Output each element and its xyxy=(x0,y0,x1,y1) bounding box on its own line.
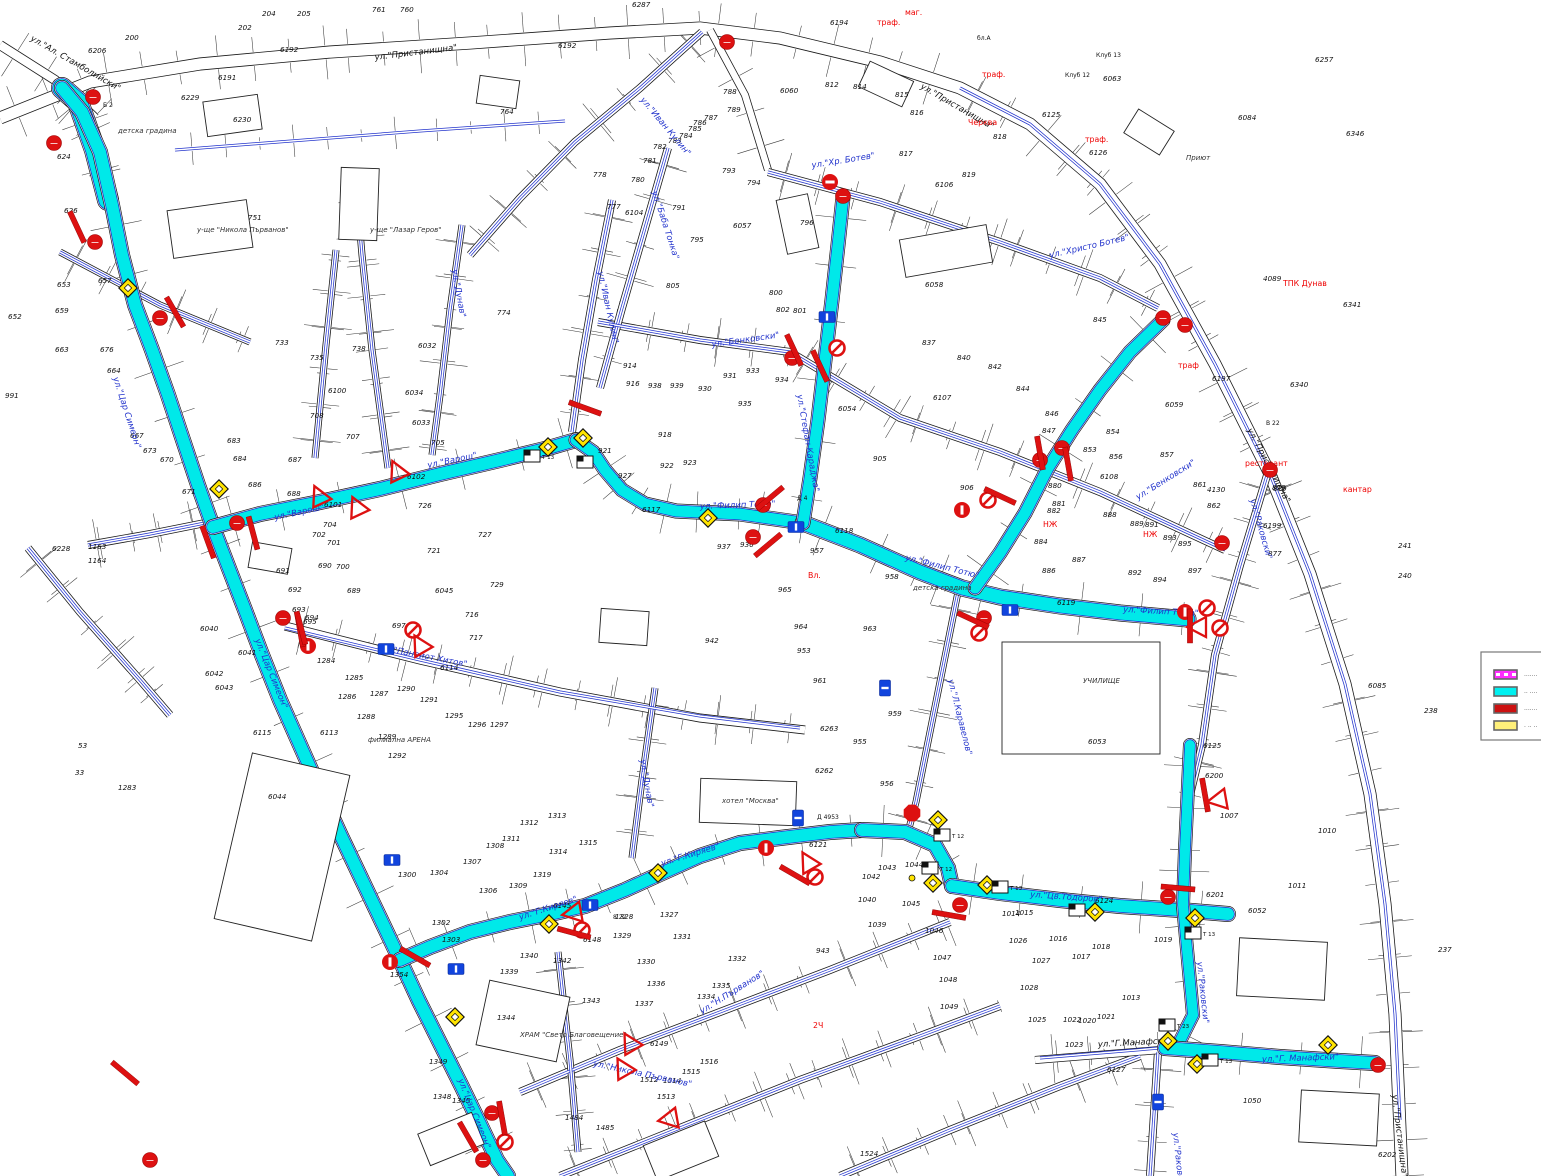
parcel-number: 687 xyxy=(288,455,302,464)
parcel-number: 6119 xyxy=(1057,598,1076,607)
parcel-number: 1484 xyxy=(565,1113,584,1122)
parcel-number: 241 xyxy=(1398,541,1412,550)
parcel-number: 1303 xyxy=(442,935,461,944)
parcel-number: 6100 xyxy=(328,386,347,395)
poi-label-red: Черква xyxy=(968,118,997,127)
slash-marker[interactable] xyxy=(830,341,845,356)
parcel-number: 727 xyxy=(478,530,492,539)
parcel-number: 240 xyxy=(1398,571,1412,580)
parcel-number: 791 xyxy=(672,203,686,212)
parcel-number: 937 xyxy=(717,542,731,551)
shaft-marker[interactable] xyxy=(1069,904,1085,916)
parcel-number: 695 xyxy=(303,617,317,626)
parcel-number: 1297 xyxy=(490,720,509,729)
dot-marker[interactable] xyxy=(86,90,101,105)
parcel-number: 1017 xyxy=(1072,952,1091,961)
parcel-number: 886 xyxy=(1042,566,1056,575)
parcel-number: 6044 xyxy=(268,792,287,801)
poi-label: у-ще "Лазар Геров" xyxy=(369,226,442,234)
parcel-number: 1015 xyxy=(1015,908,1034,917)
parcel-number: 6229 xyxy=(181,93,200,102)
parcel-number: 1296 xyxy=(468,720,487,729)
parcel-number: 686 xyxy=(248,480,262,489)
parcel-number: 1513 xyxy=(657,1092,676,1101)
parcel-number: 204 xyxy=(262,9,276,18)
parcel-number: 1018 xyxy=(1092,942,1111,951)
parcel-number: 751 xyxy=(248,213,262,222)
parcel-number: 894 xyxy=(1153,575,1167,584)
poi-label: УЧИЛИЩЕ xyxy=(1083,677,1120,685)
parcel-number: 1342 xyxy=(553,956,572,965)
parcel-number: 892 xyxy=(1128,568,1142,577)
parcel-number: 1288 xyxy=(357,712,376,721)
parcel-number: 906 xyxy=(960,483,974,492)
legend-label: ·· ···· xyxy=(1524,690,1537,697)
parcel-number: 1049 xyxy=(940,1002,959,1011)
poi-label: детска градина xyxy=(117,127,176,135)
svg-text:Т 12: Т 12 xyxy=(951,834,964,840)
parcel-number: 652 xyxy=(8,312,22,321)
parcel-number: 760 xyxy=(400,5,414,14)
parcel-number: 1311 xyxy=(502,834,520,843)
parcel-number: 846 xyxy=(1045,409,1059,418)
parcel-number: 800 xyxy=(769,288,783,297)
dot-marker[interactable] xyxy=(143,1153,158,1168)
parcel-number: 963 xyxy=(863,624,877,633)
parcel-number: 1300 xyxy=(398,870,417,879)
annotation-label: В 22 xyxy=(1266,420,1280,427)
parcel-number: 237 xyxy=(1438,945,1452,954)
parcel-number: 854 xyxy=(1106,427,1120,436)
parcel-number: 708 xyxy=(310,411,324,420)
parcel-number: 842 xyxy=(988,362,1002,371)
parcel-number: 1302 xyxy=(432,918,451,927)
parcel-number: 844 xyxy=(1016,384,1030,393)
parcel-number: 6341 xyxy=(1343,300,1361,309)
parcel-number: 1332 xyxy=(728,954,747,963)
parcel-number: 780 xyxy=(631,175,645,184)
slash-marker[interactable] xyxy=(1200,601,1215,616)
bsign-marker[interactable] xyxy=(582,900,598,911)
parcel-number: 6117 xyxy=(642,505,661,514)
parcel-number: 905 xyxy=(873,454,887,463)
svg-text:Т 12: Т 12 xyxy=(939,867,952,873)
parcel-number: 726 xyxy=(418,501,432,510)
parcel-number: 6192 xyxy=(558,41,577,50)
parcel-number: 6054 xyxy=(838,404,857,413)
parcel-number: 1025 xyxy=(1028,1015,1047,1024)
bsign-marker[interactable] xyxy=(788,522,804,533)
dot-marker[interactable] xyxy=(1263,463,1278,478)
parcel-number: 1319 xyxy=(533,870,552,879)
parcel-number: 6206 xyxy=(88,46,107,55)
parcel-number: 6104 xyxy=(625,208,644,217)
ydot-marker[interactable] xyxy=(909,875,915,881)
dot-marker[interactable] xyxy=(476,1153,491,1168)
parcel-number: 955 xyxy=(853,737,867,746)
parcel-number: 1312 xyxy=(520,818,539,827)
parcel-number: 788 xyxy=(723,87,737,96)
parcel-number: 689 xyxy=(347,586,361,595)
bsign-marker[interactable] xyxy=(880,680,891,696)
parcel-number: 1485 xyxy=(596,1123,615,1132)
city-map-svg[interactable]: 2002022042056206619261926191622962307516… xyxy=(0,0,1541,1176)
parcel-number: 690 xyxy=(318,561,332,570)
parcel-number: 1330 xyxy=(637,957,656,966)
parcel-number: 1306 xyxy=(479,886,498,895)
dot-marker[interactable] xyxy=(1161,890,1176,905)
parcel-number: 6060 xyxy=(780,86,799,95)
parcel-number: 1287 xyxy=(370,689,389,698)
parcel-number: 6125 xyxy=(1203,741,1222,750)
legend-label: · ·· ·· xyxy=(1524,724,1537,731)
parcel-number: 933 xyxy=(746,366,760,375)
parcel-number: 818 xyxy=(993,132,1007,141)
dot-marker[interactable] xyxy=(720,35,735,50)
parcel-number: 778 xyxy=(593,170,607,179)
parcel-number: 671 xyxy=(182,487,196,496)
parcel-number: 1515 xyxy=(682,1067,701,1076)
parcel-number: 815 xyxy=(895,90,909,99)
vbar-marker[interactable] xyxy=(382,954,398,970)
parcel-number: 676 xyxy=(100,345,114,354)
parcel-number: 721 xyxy=(427,546,441,555)
parcel-number: 1047 xyxy=(933,953,952,962)
poi-label-red: траф. xyxy=(982,70,1005,79)
parcel-number: 6191 xyxy=(218,73,236,82)
parcel-number: 1286 xyxy=(338,692,357,701)
vbar-marker[interactable] xyxy=(954,502,970,518)
parcel-number: 923 xyxy=(683,458,697,467)
parcel-number: 688 xyxy=(287,489,301,498)
parcel-number: 1283 xyxy=(118,783,137,792)
parcel-number: 1285 xyxy=(345,673,364,682)
parcel-number: 6032 xyxy=(418,341,437,350)
parcel-number: 965 xyxy=(778,585,792,594)
parcel-number: 1043 xyxy=(878,863,897,872)
dot-marker[interactable] xyxy=(276,611,291,626)
dot-marker[interactable] xyxy=(1178,318,1193,333)
bsign-marker[interactable] xyxy=(378,644,394,655)
parcel-number: 916 xyxy=(626,379,640,388)
parcel-number: 814 xyxy=(853,82,867,91)
parcel-number: 861 xyxy=(1193,480,1207,489)
parcel-number: 701 xyxy=(327,538,341,547)
parcel-number: 1046 xyxy=(925,926,944,935)
parcel-number: 1021 xyxy=(1097,1012,1115,1021)
parcel-number: 6058 xyxy=(925,280,944,289)
parcel-number: 856 xyxy=(1109,452,1123,461)
parcel-number: 1028 xyxy=(1020,983,1039,992)
parcel-number: 6053 xyxy=(1088,737,1107,746)
dot-marker[interactable] xyxy=(836,189,851,204)
parcel-number: 700 xyxy=(336,562,350,571)
poi-label-red: 2Ч xyxy=(813,1021,823,1030)
parcel-number: 202 xyxy=(238,23,252,32)
stopbar-marker[interactable] xyxy=(822,174,838,190)
parcel-number: 1019 xyxy=(1154,935,1173,944)
parcel-number: 6045 xyxy=(435,586,454,595)
shaft-marker[interactable] xyxy=(577,456,593,468)
parcel-number: 939 xyxy=(670,381,684,390)
parcel-number: 1331 xyxy=(673,932,691,941)
parcel-number: 938 xyxy=(648,381,662,390)
poi-label-red: траф. xyxy=(877,18,900,27)
parcel-number: 794 xyxy=(747,178,761,187)
parcel-number: 956 xyxy=(880,779,894,788)
parcel-number: 897 xyxy=(1188,566,1202,575)
poi-label-red: Вл. xyxy=(808,571,821,580)
bsign-marker[interactable] xyxy=(793,810,804,826)
parcel-number: 6106 xyxy=(935,180,954,189)
parcel-number: 6197 xyxy=(1212,374,1231,383)
parcel-number: 6118 xyxy=(835,526,854,535)
parcel-number: 664 xyxy=(107,366,121,375)
parcel-number: 1044 xyxy=(905,860,924,869)
parcel-number: 931 xyxy=(723,371,737,380)
parcel-number: 1314 xyxy=(549,847,568,856)
parcel-number: 777 xyxy=(607,202,621,211)
parcel-number: 6202 xyxy=(1378,1150,1397,1159)
parcel-number: 1337 xyxy=(635,999,654,1008)
dot-marker[interactable] xyxy=(953,898,968,913)
poi-label: ХРАМ "Свето Благовещение" xyxy=(519,1031,627,1039)
parcel-number: 6107 xyxy=(933,393,952,402)
annotation-label: 8 22 xyxy=(613,914,627,921)
parcel-number: 6108 xyxy=(1100,472,1119,481)
annotation-label: бл.А xyxy=(977,35,991,42)
parcel-number: 673 xyxy=(143,446,157,455)
parcel-number: 33 xyxy=(75,768,85,777)
parcel-number: 684 xyxy=(233,454,247,463)
poi-label-red: траф. xyxy=(1085,135,1108,144)
parcel-number: 702 xyxy=(312,530,326,539)
parcel-number: 887 xyxy=(1072,555,1086,564)
building-outline xyxy=(476,75,520,108)
annotation-label: Клуб 12 xyxy=(1065,72,1090,79)
parcel-number: 6034 xyxy=(405,388,424,397)
building-outline xyxy=(1299,1090,1380,1146)
parcel-number: 6041 xyxy=(238,648,256,657)
dot-marker[interactable] xyxy=(1371,1058,1386,1073)
poi-label-red: кантар xyxy=(1343,485,1372,494)
parcel-number: 738 xyxy=(352,344,366,353)
parcel-number: 4130 xyxy=(1207,485,1226,494)
parcel-number: 733 xyxy=(275,338,289,347)
dot-marker[interactable] xyxy=(746,530,761,545)
annotation-label: Д 4953 xyxy=(817,814,839,821)
parcel-number: 930 xyxy=(698,384,712,393)
poi-label-red: НЖ xyxy=(1143,530,1158,539)
poi-label-red: ТПК Дунав xyxy=(1282,279,1327,288)
parcel-number: 889 xyxy=(1130,519,1144,528)
svg-text:Т 13: Т 13 xyxy=(1219,1059,1233,1065)
parcel-number: 663 xyxy=(55,345,69,354)
parcel-number: 922 xyxy=(660,461,674,470)
bsign-marker[interactable] xyxy=(1153,1094,1164,1110)
parcel-number: 1343 xyxy=(582,996,601,1005)
poi-label-red: траф xyxy=(1178,361,1199,370)
parcel-number: 6346 xyxy=(1346,129,1365,138)
dot-marker[interactable] xyxy=(1215,536,1230,551)
parcel-number: 657 xyxy=(98,276,112,285)
bsign-marker[interactable] xyxy=(1002,605,1018,616)
parcel-number: 796 xyxy=(800,218,814,227)
parcel-number: 1524 xyxy=(860,1149,879,1158)
parcel-number: 1295 xyxy=(445,711,464,720)
parcel-number: 1339 xyxy=(500,967,519,976)
parcel-number: 200 xyxy=(125,33,139,42)
parcel-number: 764 xyxy=(500,107,514,116)
parcel-number: 817 xyxy=(899,149,913,158)
parcel-number: 1045 xyxy=(902,899,921,908)
parcel-number: 697 xyxy=(392,621,406,630)
slash-marker[interactable] xyxy=(1213,621,1228,636)
parcel-number: 4089 xyxy=(1263,274,1282,283)
bsign-marker[interactable] xyxy=(384,855,400,866)
parcel-number: 857 xyxy=(1160,450,1174,459)
parcel-number: 653 xyxy=(57,280,71,289)
vbar-marker[interactable] xyxy=(758,840,774,856)
parcel-number: 6287 xyxy=(632,0,651,9)
map-legend: ··········· ············ ·· ·· xyxy=(1481,652,1541,740)
parcel-number: 880 xyxy=(1048,481,1062,490)
parcel-number: 6192 xyxy=(280,45,299,54)
parcel-number: 882 xyxy=(1047,506,1061,515)
parcel-number: 659 xyxy=(55,306,69,315)
parcel-number: 781 xyxy=(643,156,657,165)
parcel-number: 1327 xyxy=(660,910,679,919)
parcel-number: 6059 xyxy=(1165,400,1184,409)
parcel-number: 921 xyxy=(598,446,612,455)
parcel-number: 1023 xyxy=(1065,1040,1084,1049)
parcel-number: 884 xyxy=(1034,537,1048,546)
parcel-number: 918 xyxy=(658,430,672,439)
bsign-marker[interactable] xyxy=(448,964,464,975)
dot-marker[interactable] xyxy=(153,311,168,326)
svg-text:Т 13: Т 13 xyxy=(541,455,555,461)
parcel-number: 6263 xyxy=(820,724,839,733)
parcel-number: 6113 xyxy=(320,728,339,737)
parcel-number: 683 xyxy=(227,436,241,445)
parcel-number: 1022 xyxy=(1063,1015,1082,1024)
parcel-number: 837 xyxy=(922,338,936,347)
parcel-number: 1010 xyxy=(1318,826,1337,835)
poi-label: Приют xyxy=(1186,154,1211,162)
parcel-number: 957 xyxy=(810,546,824,555)
parcel-number: 729 xyxy=(490,580,504,589)
parcel-number: 6121 xyxy=(809,840,827,849)
annotation-label: Клуб 13 xyxy=(1096,52,1121,59)
parcel-number: 914 xyxy=(623,361,637,370)
parcel-number: 1308 xyxy=(486,841,505,850)
dot-marker[interactable] xyxy=(485,1106,500,1121)
parcel-number: 819 xyxy=(962,170,976,179)
parcel-number: 6040 xyxy=(200,624,219,633)
parcel-number: 6033 xyxy=(412,418,431,427)
parcel-number: 6149 xyxy=(650,1039,669,1048)
parcel-number: 1309 xyxy=(509,881,528,890)
poi-label-red: маг. xyxy=(905,8,922,17)
parcel-number: 1163 xyxy=(88,542,107,551)
parcel-number: 1291 xyxy=(420,695,438,704)
parcel-number: 1349 xyxy=(429,1057,448,1066)
parcel-number: 1307 xyxy=(463,857,482,866)
parcel-number: 1313 xyxy=(548,811,567,820)
parcel-number: 704 xyxy=(323,520,337,529)
parcel-number: 1016 xyxy=(1049,934,1068,943)
legend-swatch xyxy=(1494,704,1517,713)
parcel-number: 774 xyxy=(497,308,511,317)
parcel-number: 958 xyxy=(885,572,899,581)
parcel-number: 6201 xyxy=(1206,890,1224,899)
parcel-number: 953 xyxy=(797,646,811,655)
svg-text:Т 13: Т 13 xyxy=(1009,886,1023,892)
parcel-number: 847 xyxy=(1042,426,1056,435)
parcel-number: 927 xyxy=(618,471,632,480)
parcel-number: 53 xyxy=(78,741,88,750)
parcel-number: 6042 xyxy=(205,669,224,678)
slash-marker[interactable] xyxy=(498,1135,513,1150)
parcel-number: 707 xyxy=(346,432,360,441)
parcel-number: 991 xyxy=(5,391,19,400)
parcel-number: 943 xyxy=(816,946,830,955)
building-outline xyxy=(1237,938,1328,1001)
parcel-number: 1354 xyxy=(390,970,409,979)
parcel-number: 624 xyxy=(57,152,71,161)
parcel-number: 6125 xyxy=(1042,110,1061,119)
svg-text:Т 13: Т 13 xyxy=(1202,932,1216,938)
parcel-number: 1336 xyxy=(647,979,666,988)
oct-marker[interactable] xyxy=(904,805,921,822)
parcel-number: 1292 xyxy=(388,751,407,760)
parcel-number: 942 xyxy=(705,636,719,645)
legend-swatch xyxy=(1494,687,1517,696)
dot-marker[interactable] xyxy=(1156,311,1171,326)
parcel-number: 1348 xyxy=(433,1092,452,1101)
parcel-number: 961 xyxy=(813,676,827,685)
parcel-number: 793 xyxy=(722,166,736,175)
parcel-number: 692 xyxy=(288,585,302,594)
dot-marker[interactable] xyxy=(88,235,103,250)
parcel-number: 1013 xyxy=(1122,993,1141,1002)
parcel-number: 1304 xyxy=(430,868,449,877)
parcel-number: 1344 xyxy=(497,1013,516,1022)
dot-marker[interactable] xyxy=(47,136,62,151)
parcel-number: 670 xyxy=(160,455,174,464)
parcel-number: 6063 xyxy=(1103,74,1122,83)
map-canvas[interactable]: 2002022042056206619261926191622962307516… xyxy=(0,0,1541,1176)
parcel-number: 1007 xyxy=(1220,811,1239,820)
parcel-number: 6200 xyxy=(1205,771,1224,780)
dot-marker[interactable] xyxy=(230,516,245,531)
slash-marker[interactable] xyxy=(406,623,421,638)
parcel-number: 6127 xyxy=(1107,1065,1126,1074)
bsign-marker[interactable] xyxy=(819,312,835,323)
parcel-number: 782 xyxy=(653,142,667,151)
parcel-number: 6194 xyxy=(830,18,849,27)
parcel-number: 893 xyxy=(1163,533,1177,542)
parcel-number: 789 xyxy=(727,105,741,114)
parcel-number: 845 xyxy=(1093,315,1107,324)
parcel-number: 802 xyxy=(776,305,790,314)
building-outline xyxy=(1002,642,1160,754)
legend-swatch xyxy=(1494,721,1517,730)
parcel-number: 1042 xyxy=(862,872,881,881)
parcel-number: 6340 xyxy=(1290,380,1309,389)
parcel-number: 705 xyxy=(431,438,445,447)
building-outline xyxy=(599,608,649,645)
